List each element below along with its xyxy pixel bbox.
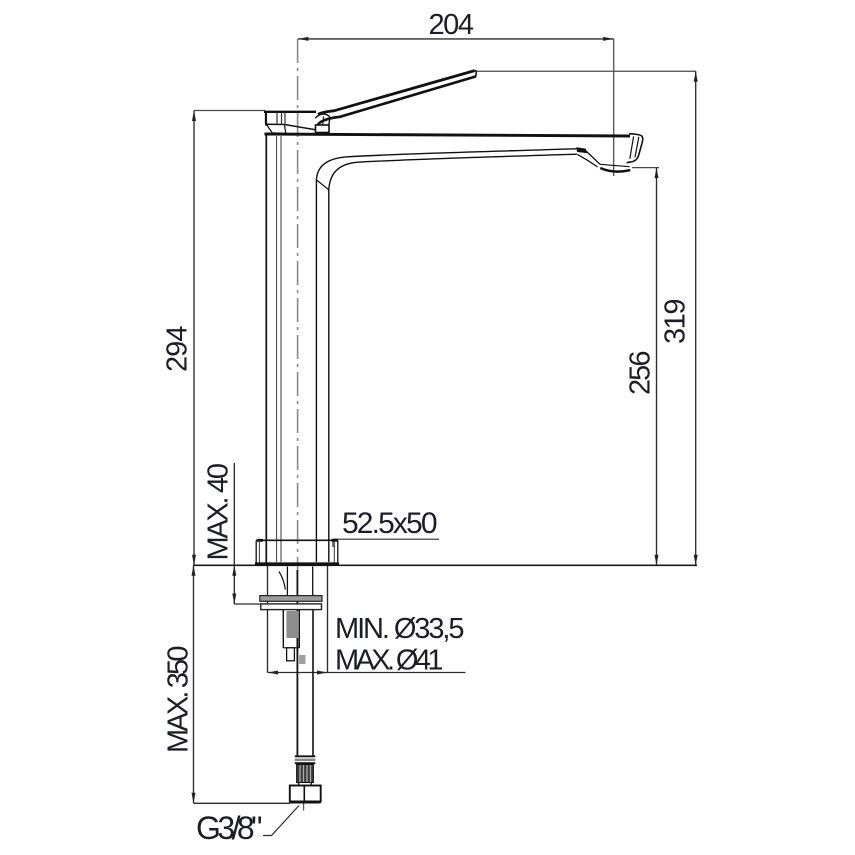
svg-text:MAX. 40: MAX. 40 — [203, 464, 235, 561]
svg-text:294: 294 — [162, 326, 194, 372]
svg-text:52.5x50: 52.5x50 — [342, 507, 437, 540]
svg-text:204: 204 — [429, 9, 474, 41]
svg-text:G3/8": G3/8" — [196, 810, 262, 846]
svg-text:MIN. Ø33,5: MIN. Ø33,5 — [335, 613, 464, 645]
svg-text:MAX. Ø41: MAX. Ø41 — [335, 645, 443, 677]
svg-text:319: 319 — [660, 299, 692, 344]
svg-text:256: 256 — [625, 351, 657, 395]
svg-text:MAX. 350: MAX. 350 — [163, 646, 195, 753]
